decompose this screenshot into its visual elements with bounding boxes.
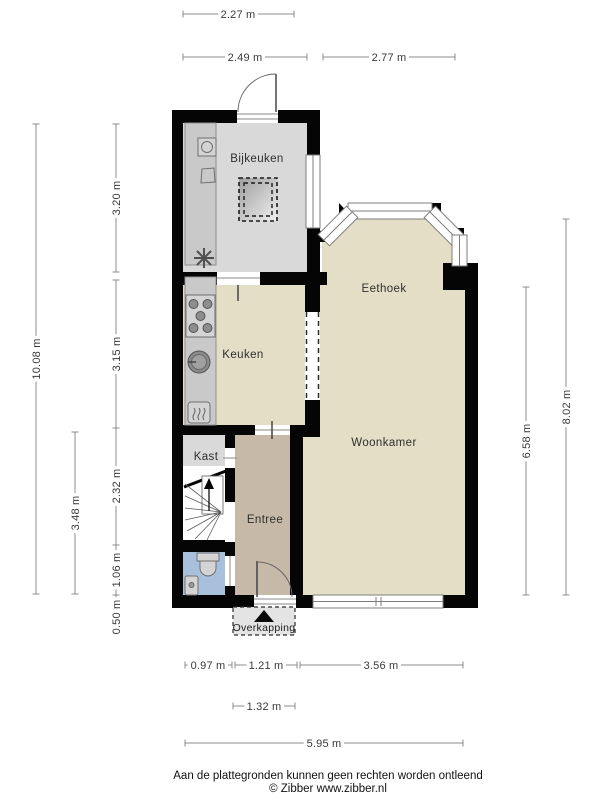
room-label-kast: Kast	[194, 451, 219, 463]
floor-plan-page: Bijkeuken Eethoek Keuken Woonkamer Kast …	[0, 0, 600, 800]
wall-right	[465, 285, 478, 598]
room-label-eethoek: Eethoek	[362, 283, 407, 295]
kitchen-sink-icon	[188, 351, 210, 373]
room-label-keuken: Keuken	[222, 349, 263, 361]
gas-hob-icon	[186, 295, 215, 337]
dimension-label: 5.95 m	[307, 738, 342, 750]
room-label-overkapping: Overkapping	[233, 622, 296, 634]
dimension-label: 3.56 m	[364, 660, 399, 672]
dimension-label: 1.21 m	[249, 660, 284, 672]
footer-copyright: © Zibber www.zibber.nl	[269, 783, 387, 795]
dimension-label: 0.50 m	[111, 600, 123, 635]
dimension-right-802: 8.02 m	[561, 219, 573, 595]
opening-keuken-woonkamer	[305, 312, 320, 400]
dimension-left-232: 2.32 m	[111, 428, 123, 545]
dimension-bottom-595: 5.95 m	[185, 738, 463, 750]
dimension-label: 2.77 m	[372, 52, 407, 64]
dimension-label: 6.58 m	[521, 424, 533, 459]
dimension-left-1008: 10.08 m	[31, 124, 43, 594]
room-label-woonkamer: Woonkamer	[351, 437, 416, 449]
room-label-bijkeuken: Bijkeuken	[230, 153, 283, 165]
dimension-bottom-132: 1.32 m	[233, 701, 295, 713]
dishwasher-icon	[188, 402, 210, 423]
footer-disclaimer: Aan de plattegronden kunnen geen rechten…	[173, 770, 482, 782]
floor-eethoek-woonkamer	[302, 208, 465, 597]
back-door	[237, 74, 278, 123]
wall-left	[172, 110, 183, 608]
dimension-top-227: 2.27 m	[183, 9, 294, 21]
dimension-label: 1.32 m	[247, 701, 282, 713]
dimension-label: 8.02 m	[561, 390, 573, 425]
boiler-fan-icon	[194, 248, 214, 268]
footer: Aan de plattegronden kunnen geen rechten…	[173, 770, 482, 795]
dimension-label: 0.97 m	[191, 660, 226, 672]
dimension-label: 3.15 m	[111, 337, 123, 372]
window-bay-top	[348, 203, 432, 219]
dimension-left-106: 1.06 m	[111, 545, 123, 595]
dimension-left-320: 3.20 m	[111, 124, 123, 272]
dimension-top-249: 2.49 m	[183, 52, 307, 64]
stairs-opening	[225, 502, 235, 542]
dimension-label: 2.49 m	[228, 52, 263, 64]
dimension-right-658: 6.58 m	[521, 287, 533, 595]
dimension-left-315: 3.15 m	[111, 280, 123, 428]
dimension-bottom-356: 3.56 m	[300, 660, 463, 672]
dimension-label: 1.06 m	[111, 553, 123, 588]
toilet-door	[225, 556, 235, 586]
window-woonkamer-front	[313, 595, 443, 608]
room-label-entree: Entree	[247, 514, 283, 526]
dimension-label: 3.48 m	[70, 496, 82, 531]
dimension-label: 2.27 m	[221, 9, 256, 21]
dimension-label: 2.32 m	[111, 469, 123, 504]
dimension-label: 10.08 m	[31, 338, 43, 379]
window-bay-side	[452, 235, 467, 266]
dimension-top-277: 2.77 m	[323, 52, 455, 64]
dimension-left-050: 0.50 m	[111, 595, 123, 634]
floor-hatch-icon	[239, 178, 277, 221]
window-bijkeuken	[306, 155, 320, 228]
dimension-bottom-097: 0.97 m	[185, 660, 232, 672]
wall-entree-woonkamer	[290, 435, 303, 598]
dimension-left-348: 3.48 m	[70, 432, 82, 594]
dimension-bottom-121: 1.21 m	[235, 660, 297, 672]
kast-door	[223, 448, 237, 468]
hand-basin-icon	[185, 576, 198, 595]
washing-machine-icon	[198, 138, 216, 156]
floor-plan: Bijkeuken Eethoek Keuken Woonkamer Kast …	[0, 0, 600, 800]
dimension-label: 3.20 m	[111, 181, 123, 216]
